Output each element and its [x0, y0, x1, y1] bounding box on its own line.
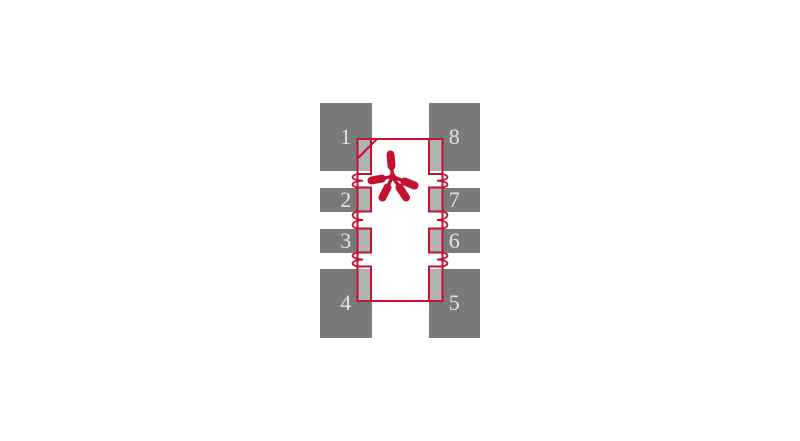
pad-1: 1 [320, 103, 372, 172]
pad-6: 6 [429, 229, 481, 253]
asterisk-arm-lower-left [383, 188, 388, 198]
asterisk-arm-right [405, 182, 415, 186]
footprint-image: 1 2 3 4 5 6 7 8 [0, 0, 800, 441]
pad-2-label: 2 [340, 189, 351, 211]
pad-2: 2 [320, 188, 372, 212]
pad-7: 7 [429, 188, 481, 212]
asterisk-arm-lower-left-taper [387, 177, 393, 190]
asterisk-arm-lower-right [400, 188, 407, 198]
pad-1-label: 1 [340, 126, 351, 148]
asterisk-arm-up-taper [391, 163, 392, 176]
asterisk-arm-left-taper [380, 177, 393, 179]
pad-8: 8 [429, 103, 481, 172]
pad-3-label: 3 [340, 230, 351, 252]
silkscreen-overlay [0, 0, 800, 441]
pad-5: 5 [429, 269, 481, 339]
asterisk-center [389, 173, 396, 180]
castellation-notch-right-1 [437, 174, 447, 188]
pad-7-label: 7 [449, 189, 460, 211]
pin1-marker-asterisk [372, 155, 415, 198]
asterisk-arm-right-taper [393, 177, 406, 182]
pad-5-label: 5 [449, 292, 460, 314]
castellation-notch-left-1 [353, 174, 363, 188]
castellation-notch-left-2 [353, 212, 363, 229]
asterisk-arm-up [391, 155, 392, 167]
pad-4-label: 4 [340, 292, 351, 314]
castellation-notch-right-2 [437, 212, 447, 229]
castellation-notch-left-3 [353, 253, 363, 267]
pad-8-label: 8 [449, 126, 460, 148]
castellation-notch-right-3 [437, 253, 447, 267]
asterisk-arm-lower-right-taper [393, 177, 401, 190]
pad-6-label: 6 [449, 230, 460, 252]
pad-3: 3 [320, 229, 372, 253]
asterisk-arm-left [372, 179, 383, 181]
pad-4: 4 [320, 269, 372, 339]
